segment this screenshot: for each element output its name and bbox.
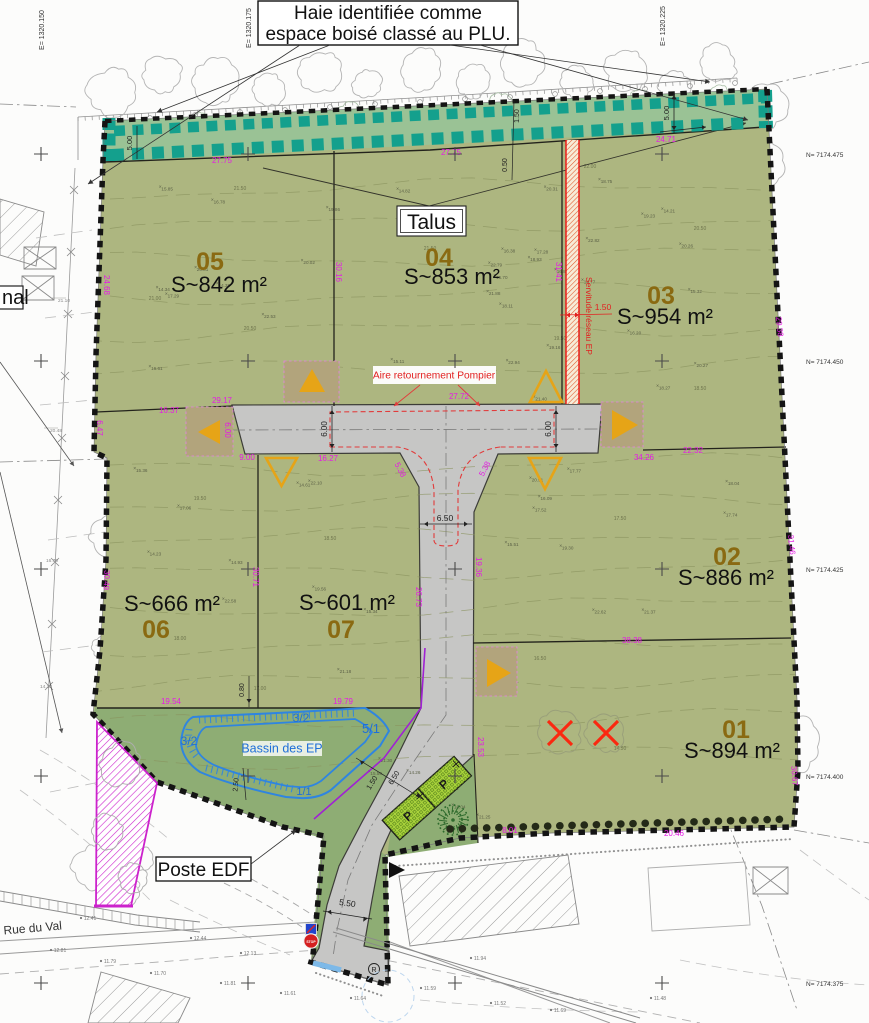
svg-text:Aire retournement Pompier: Aire retournement Pompier [373,371,496,382]
svg-text:Servitude réseau EP: Servitude réseau EP [584,277,594,355]
svg-text:17.74: 17.74 [726,513,738,518]
svg-text:19.50: 19.50 [554,336,567,342]
svg-text:18.04: 18.04 [728,481,740,486]
svg-text:11.81: 11.81 [224,981,236,987]
svg-text:1.50: 1.50 [595,302,612,312]
svg-text:22.10: 22.10 [311,480,323,485]
svg-text:20.27: 20.27 [697,363,709,368]
svg-text:20.46: 20.46 [664,829,685,838]
svg-text:22.62: 22.62 [595,609,607,614]
svg-text:E= 1320.150: E= 1320.150 [39,10,46,50]
svg-text:N= 7174.375: N= 7174.375 [806,981,844,988]
svg-text:S~954 m²: S~954 m² [617,304,713,329]
svg-text:16.27: 16.27 [318,454,339,463]
svg-text:19.54: 19.54 [161,697,182,706]
svg-text:6.00: 6.00 [320,421,329,437]
svg-text:20.48: 20.48 [50,428,62,434]
svg-text:16.20: 16.20 [630,330,642,335]
svg-text:21.50: 21.50 [234,186,247,192]
svg-text:1/1: 1/1 [296,786,311,798]
svg-text:14.21: 14.21 [664,209,676,214]
svg-text:23.53: 23.53 [476,737,485,758]
svg-text:12.13: 12.13 [244,951,257,957]
svg-text:21.37: 21.37 [644,609,656,614]
svg-text:1.50: 1.50 [514,109,521,123]
svg-text:N= 7174.475: N= 7174.475 [806,152,844,159]
svg-text:20.31: 20.31 [546,187,558,192]
svg-text:27.72: 27.72 [449,392,470,401]
svg-text:5/1: 5/1 [362,721,380,736]
svg-text:24.71: 24.71 [656,135,677,144]
svg-text:18.00: 18.00 [174,636,187,642]
svg-text:16.78: 16.78 [214,200,226,205]
svg-text:N= 7174.400: N= 7174.400 [806,774,844,781]
svg-text:21.25: 21.25 [479,815,491,820]
svg-text:0.80: 0.80 [239,683,246,697]
svg-text:E= 1320.175: E= 1320.175 [246,8,253,48]
svg-text:16.37: 16.37 [159,406,180,415]
svg-text:16.38: 16.38 [504,248,516,253]
svg-text:12.41: 12.41 [84,916,97,922]
svg-text:11.69: 11.69 [554,1008,566,1014]
svg-text:5.00: 5.00 [662,106,671,121]
svg-text:S~666 m²: S~666 m² [124,591,220,616]
svg-text:11.59: 11.59 [424,986,436,992]
svg-text:nal: nal [2,287,29,309]
svg-text:21.00: 21.00 [149,296,162,302]
svg-text:19.36: 19.36 [474,557,483,578]
svg-text:20.02: 20.02 [303,260,315,265]
svg-text:STOP: STOP [306,940,316,944]
svg-text:15.36: 15.36 [136,468,148,473]
svg-text:18.75: 18.75 [601,179,613,184]
svg-text:17.28: 17.28 [537,249,549,254]
svg-text:24.68: 24.68 [102,275,111,296]
svg-text:17.00: 17.00 [254,686,267,692]
svg-text:22.32: 22.32 [683,446,704,455]
svg-text:20.26: 20.26 [682,244,694,249]
svg-text:11.52: 11.52 [494,1001,506,1007]
svg-text:19.79: 19.79 [333,697,354,706]
svg-text:14.61: 14.61 [299,482,311,487]
svg-text:17.77: 17.77 [570,469,582,474]
svg-text:18.93: 18.93 [530,257,542,262]
svg-text:19.23: 19.23 [644,214,656,219]
svg-text:07: 07 [327,616,355,644]
svg-text:15.11: 15.11 [393,359,405,364]
svg-text:38.38: 38.38 [622,636,643,645]
svg-text:30.16: 30.16 [334,262,343,283]
svg-text:espace boisé classé au PLU.: espace boisé classé au PLU. [265,24,510,45]
svg-text:18.50: 18.50 [694,386,707,392]
svg-text:S~601 m²: S~601 m² [299,590,395,615]
svg-text:17.52: 17.52 [535,508,547,513]
svg-text:S~853 m²: S~853 m² [404,264,500,289]
svg-text:06: 06 [142,616,170,644]
svg-text:14.82: 14.82 [399,189,411,194]
svg-text:30.67: 30.67 [789,766,799,787]
svg-text:26.73: 26.73 [414,587,423,608]
svg-text:31.41: 31.41 [554,262,563,283]
svg-text:30.49: 30.49 [102,570,112,591]
svg-text:30.71: 30.71 [251,567,260,588]
svg-text:14.23: 14.23 [150,552,162,557]
svg-text:N= 7174.425: N= 7174.425 [806,567,844,574]
svg-text:11.48: 11.48 [654,996,666,1002]
svg-text:21.10: 21.10 [58,298,70,304]
svg-text:3/2: 3/2 [293,711,310,725]
svg-text:Haie identifiée comme: Haie identifiée comme [294,3,482,24]
svg-text:12.44: 12.44 [194,936,207,942]
svg-text:17.06: 17.06 [180,505,192,510]
svg-text:6.47: 6.47 [95,420,104,436]
svg-text:15.85: 15.85 [161,186,173,191]
svg-text:34.26: 34.26 [634,453,655,462]
svg-text:20.50: 20.50 [694,226,707,232]
svg-text:2.50: 2.50 [232,778,240,792]
svg-text:S~842 m²: S~842 m² [171,272,267,297]
svg-text:16.70: 16.70 [46,558,58,564]
svg-text:14.26: 14.26 [409,770,421,775]
svg-text:19.50: 19.50 [194,496,207,502]
svg-text:21.88: 21.88 [489,291,501,296]
svg-text:11.64: 11.64 [354,996,366,1002]
svg-text:19.30: 19.30 [562,546,574,551]
svg-text:18.50: 18.50 [324,536,337,542]
svg-text:11.70: 11.70 [154,971,166,977]
svg-text:21.40: 21.40 [535,396,547,401]
svg-text:18.11: 18.11 [502,303,514,308]
svg-text:Talus: Talus [407,211,456,234]
svg-text:3/2: 3/2 [181,734,198,748]
svg-text:27.75: 27.75 [212,156,233,165]
svg-text:16.61: 16.61 [151,366,163,371]
svg-text:Bassin des EP: Bassin des EP [241,742,322,756]
svg-text:19.16: 19.16 [549,345,561,350]
svg-text:11.79: 11.79 [104,959,116,965]
svg-text:11.61: 11.61 [284,991,296,997]
svg-text:6.00: 6.00 [223,422,232,438]
svg-text:11.94: 11.94 [474,956,486,962]
svg-text:0.50: 0.50 [502,158,509,172]
svg-text:14.93: 14.93 [231,560,243,565]
svg-text:8.01: 8.01 [502,826,518,835]
svg-text:27.75: 27.75 [441,148,462,157]
svg-text:17.50: 17.50 [614,516,627,522]
svg-text:6.00: 6.00 [544,421,553,437]
svg-text:18.27: 18.27 [659,386,671,391]
svg-text:15.32: 15.32 [690,289,702,294]
svg-text:22.53: 22.53 [264,314,276,319]
svg-text:16.09: 16.09 [540,496,552,501]
svg-text:6.50: 6.50 [437,513,454,523]
svg-text:14.34: 14.34 [158,287,170,292]
svg-text:22.58: 22.58 [225,598,237,603]
svg-text:S~894 m²: S~894 m² [684,738,780,763]
svg-text:E= 1320.225: E= 1320.225 [660,6,667,46]
svg-text:21.18: 21.18 [340,669,352,674]
svg-text:12.81: 12.81 [54,948,67,954]
svg-text:22.94: 22.94 [508,360,520,365]
svg-text:9.00: 9.00 [239,453,255,462]
svg-text:Poste EDF: Poste EDF [158,860,250,881]
svg-text:29.17: 29.17 [212,396,233,405]
svg-text:22.82: 22.82 [588,238,600,243]
svg-text:N= 7174.450: N= 7174.450 [806,359,844,366]
svg-text:20.50: 20.50 [244,326,257,332]
svg-text:15.51: 15.51 [507,542,519,547]
svg-text:16.50: 16.50 [534,656,547,662]
svg-text:5.00: 5.00 [125,136,134,151]
svg-text:S~886 m²: S~886 m² [678,565,774,590]
